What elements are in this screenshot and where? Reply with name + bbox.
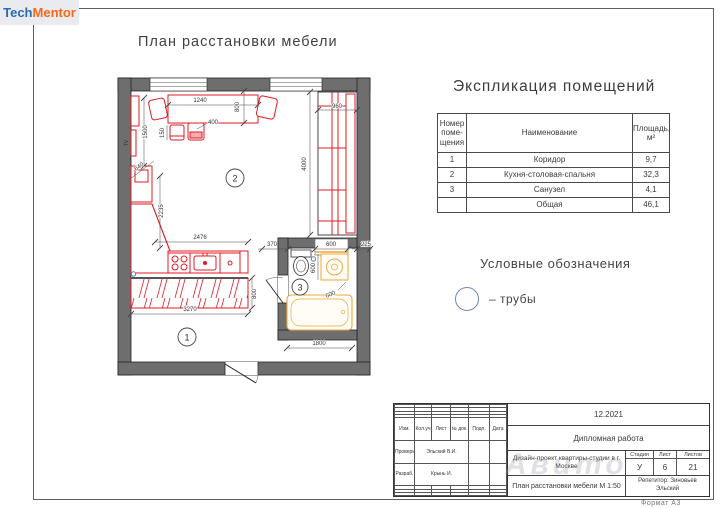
stage-label: Стадия — [626, 451, 654, 458]
dim-wc-shelf: 600 — [326, 242, 337, 248]
washing-machine — [321, 254, 348, 280]
col-ndok: № док. — [451, 418, 469, 441]
room-number-2: 2 — [232, 174, 237, 184]
room-num-cell — [438, 198, 467, 213]
toilet — [291, 250, 311, 276]
col-koluch: Кол.уч — [415, 418, 432, 441]
window-left — [150, 78, 207, 91]
kitchen-cabinet — [220, 253, 240, 273]
stool — [170, 125, 184, 140]
room-name-cell: Общая — [467, 198, 633, 213]
room-name-cell: Санузел — [467, 183, 633, 198]
table-row: 3 Санузел 4,1 — [438, 183, 670, 198]
dim-stool-offset: 400 — [208, 120, 219, 126]
dim-washer-depth: 600 — [311, 262, 317, 273]
page-title: План расстановки мебели — [138, 34, 338, 50]
col-list: Лист — [432, 418, 451, 441]
bathroom-wall-bottom — [278, 330, 357, 340]
signer-role: Проверил — [395, 440, 415, 463]
stamp-sheet-name: План расстановки мебели М 1:50 — [508, 476, 626, 496]
col-header-area: Площадь, м² — [633, 114, 670, 153]
title-block: Изм. Кол.уч Лист № док. Подп. Дата Прове… — [393, 403, 710, 497]
stove — [168, 253, 190, 273]
stamp-work-type: Дипломная работа — [508, 426, 709, 451]
sheet-value: 6 — [654, 459, 677, 475]
pipe-legend-label: – трубы — [489, 292, 536, 306]
legend-title: Условные обозначения — [480, 256, 630, 271]
chair — [256, 95, 278, 119]
drawing-sheet: TechMentor План расстановки мебели — [0, 0, 720, 508]
sheet-label: Лист — [654, 451, 677, 458]
pipe-legend-icon — [455, 287, 479, 311]
signer-role: Разраб. — [395, 463, 415, 486]
room-num-cell: 2 — [438, 168, 467, 183]
signer-name: Эльский В.И. — [415, 440, 469, 463]
col-izm: Изм. — [395, 418, 415, 441]
dim-wardrobe-length: 3270 — [183, 307, 197, 313]
dim-tv-wall: 1500 — [143, 125, 149, 139]
dim-kitchen-wall: 2235 — [159, 204, 165, 218]
tv-label: TV — [124, 139, 130, 146]
pipe-marker — [311, 257, 315, 261]
table-row: 1 Коридор 9,7 — [438, 153, 670, 168]
room-name-cell: Коридор — [467, 153, 633, 168]
col-data: Дата — [490, 418, 507, 441]
explication-table: Номер поме-щения Наименование Площадь, м… — [437, 113, 670, 213]
dim-sofa-width: 960 — [332, 104, 343, 110]
room-number-3: 3 — [297, 283, 302, 293]
counter-end-panel — [240, 251, 248, 273]
kitchen-tall-unit — [131, 166, 152, 202]
dim-wall-ext: 225 — [361, 242, 372, 248]
room-num-cell: 1 — [438, 153, 467, 168]
room-area-cell: 46,1 — [633, 198, 670, 213]
tv — [131, 130, 136, 156]
window-right — [270, 78, 322, 91]
signer-row: Проверил Эльский В.И. — [395, 440, 507, 463]
dim-counter: 2476 — [193, 235, 207, 241]
dining-table — [168, 95, 258, 123]
dim-sofa-length: 4000 — [302, 157, 308, 171]
dim-wc-wall: 370 — [267, 242, 278, 248]
dim-gap-800: 800 — [235, 101, 241, 112]
format-label: Формат А3 — [641, 500, 681, 507]
col-header-name: Наименование — [467, 114, 633, 153]
sheets-label: Листов — [677, 451, 709, 458]
dim-stool: 150 — [160, 127, 166, 138]
logo-part-mentor: Mentor — [33, 5, 76, 20]
bathtub — [287, 295, 352, 330]
stamp-header-row: Изм. Кол.уч Лист № док. Подп. Дата — [395, 418, 507, 441]
dim-table-width: 1240 — [193, 98, 207, 104]
chair — [148, 98, 168, 121]
col-header-number: Номер поме-щения — [438, 114, 467, 153]
entrance-door — [225, 362, 258, 383]
logo-part-tech: Tech — [3, 5, 32, 20]
room-name-cell: Кухня-столовая-спальня — [467, 168, 633, 183]
floor-plan: 1240 800 960 4000 1500 150 400 640 2235 … — [100, 58, 400, 388]
stamp-date: 12.2021 — [508, 404, 709, 426]
dim-wardrobe-depth: 800 — [252, 288, 258, 299]
room-number-1: 1 — [184, 333, 189, 343]
signer-row: Разраб. Крынь И. — [395, 463, 507, 486]
stamp-tutor: Репетитор: Зиновьев Эльский — [626, 476, 709, 496]
col-podp: Подп. — [469, 418, 490, 441]
techmentor-logo: TechMentor — [0, 0, 79, 25]
room-num-cell: 3 — [438, 183, 467, 198]
dim-bath-length: 1800 — [312, 341, 326, 347]
sheets-value: 21 — [677, 459, 709, 475]
table-row: 2 Кухня-столовая-спальня 32,3 — [438, 168, 670, 183]
stamp-project-name: Дизайн-проект квартиры-студии в г. Москв… — [508, 451, 626, 475]
wardrobe — [131, 278, 248, 308]
room-area-cell: 32,3 — [633, 168, 670, 183]
room-area-cell: 9,7 — [633, 153, 670, 168]
signer-name: Крынь И. — [415, 463, 469, 486]
table-row: Общая 46,1 — [438, 198, 670, 213]
stage-value: У — [626, 459, 654, 475]
sink — [190, 253, 220, 273]
explication-title: Экспликация помещений — [453, 78, 655, 96]
pipe-marker — [131, 272, 135, 276]
bathroom-door — [266, 275, 288, 303]
title-block-left: Изм. Кол.уч Лист № док. Подп. Дата Прове… — [394, 404, 507, 496]
title-block-right: 12.2021 Дипломная работа Дизайн-проект к… — [507, 404, 709, 496]
sofa — [318, 92, 357, 235]
room-area-cell: 4,1 — [633, 183, 670, 198]
wall-console — [131, 96, 139, 126]
stamp-stage-table: Стадия Лист Листов У 6 21 — [626, 451, 709, 475]
